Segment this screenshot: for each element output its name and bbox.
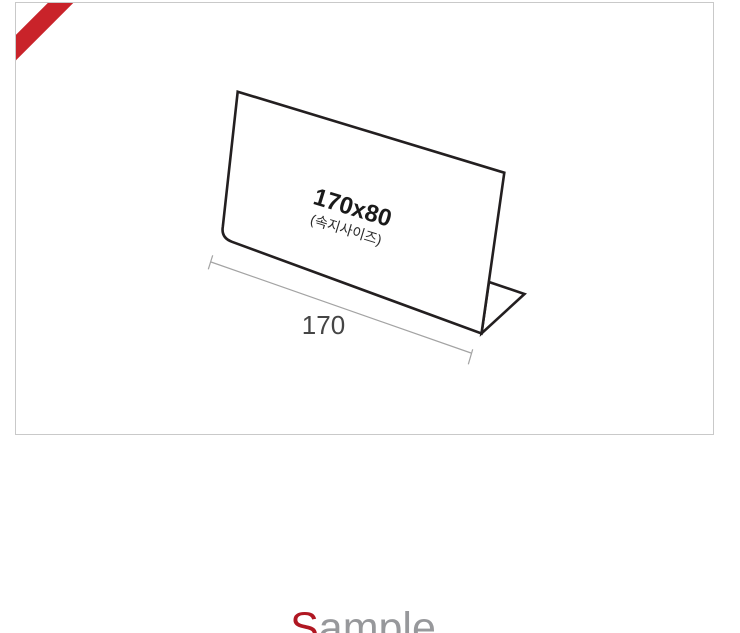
sample-watermark-first-letter: S <box>290 604 319 633</box>
sample-watermark-rest: ample <box>319 604 436 633</box>
sign-holder-diagram: 170x80 (속지사이즈) 170 <box>16 3 714 435</box>
dimension-value-label: 170 <box>302 310 345 340</box>
product-image-panel: 170x80 (속지사이즈) 170 <box>15 2 714 435</box>
sample-watermark: Sample <box>0 607 740 633</box>
dimension-tick-right <box>468 349 472 364</box>
page: 170x80 (속지사이즈) 170 Sample <box>0 0 740 633</box>
